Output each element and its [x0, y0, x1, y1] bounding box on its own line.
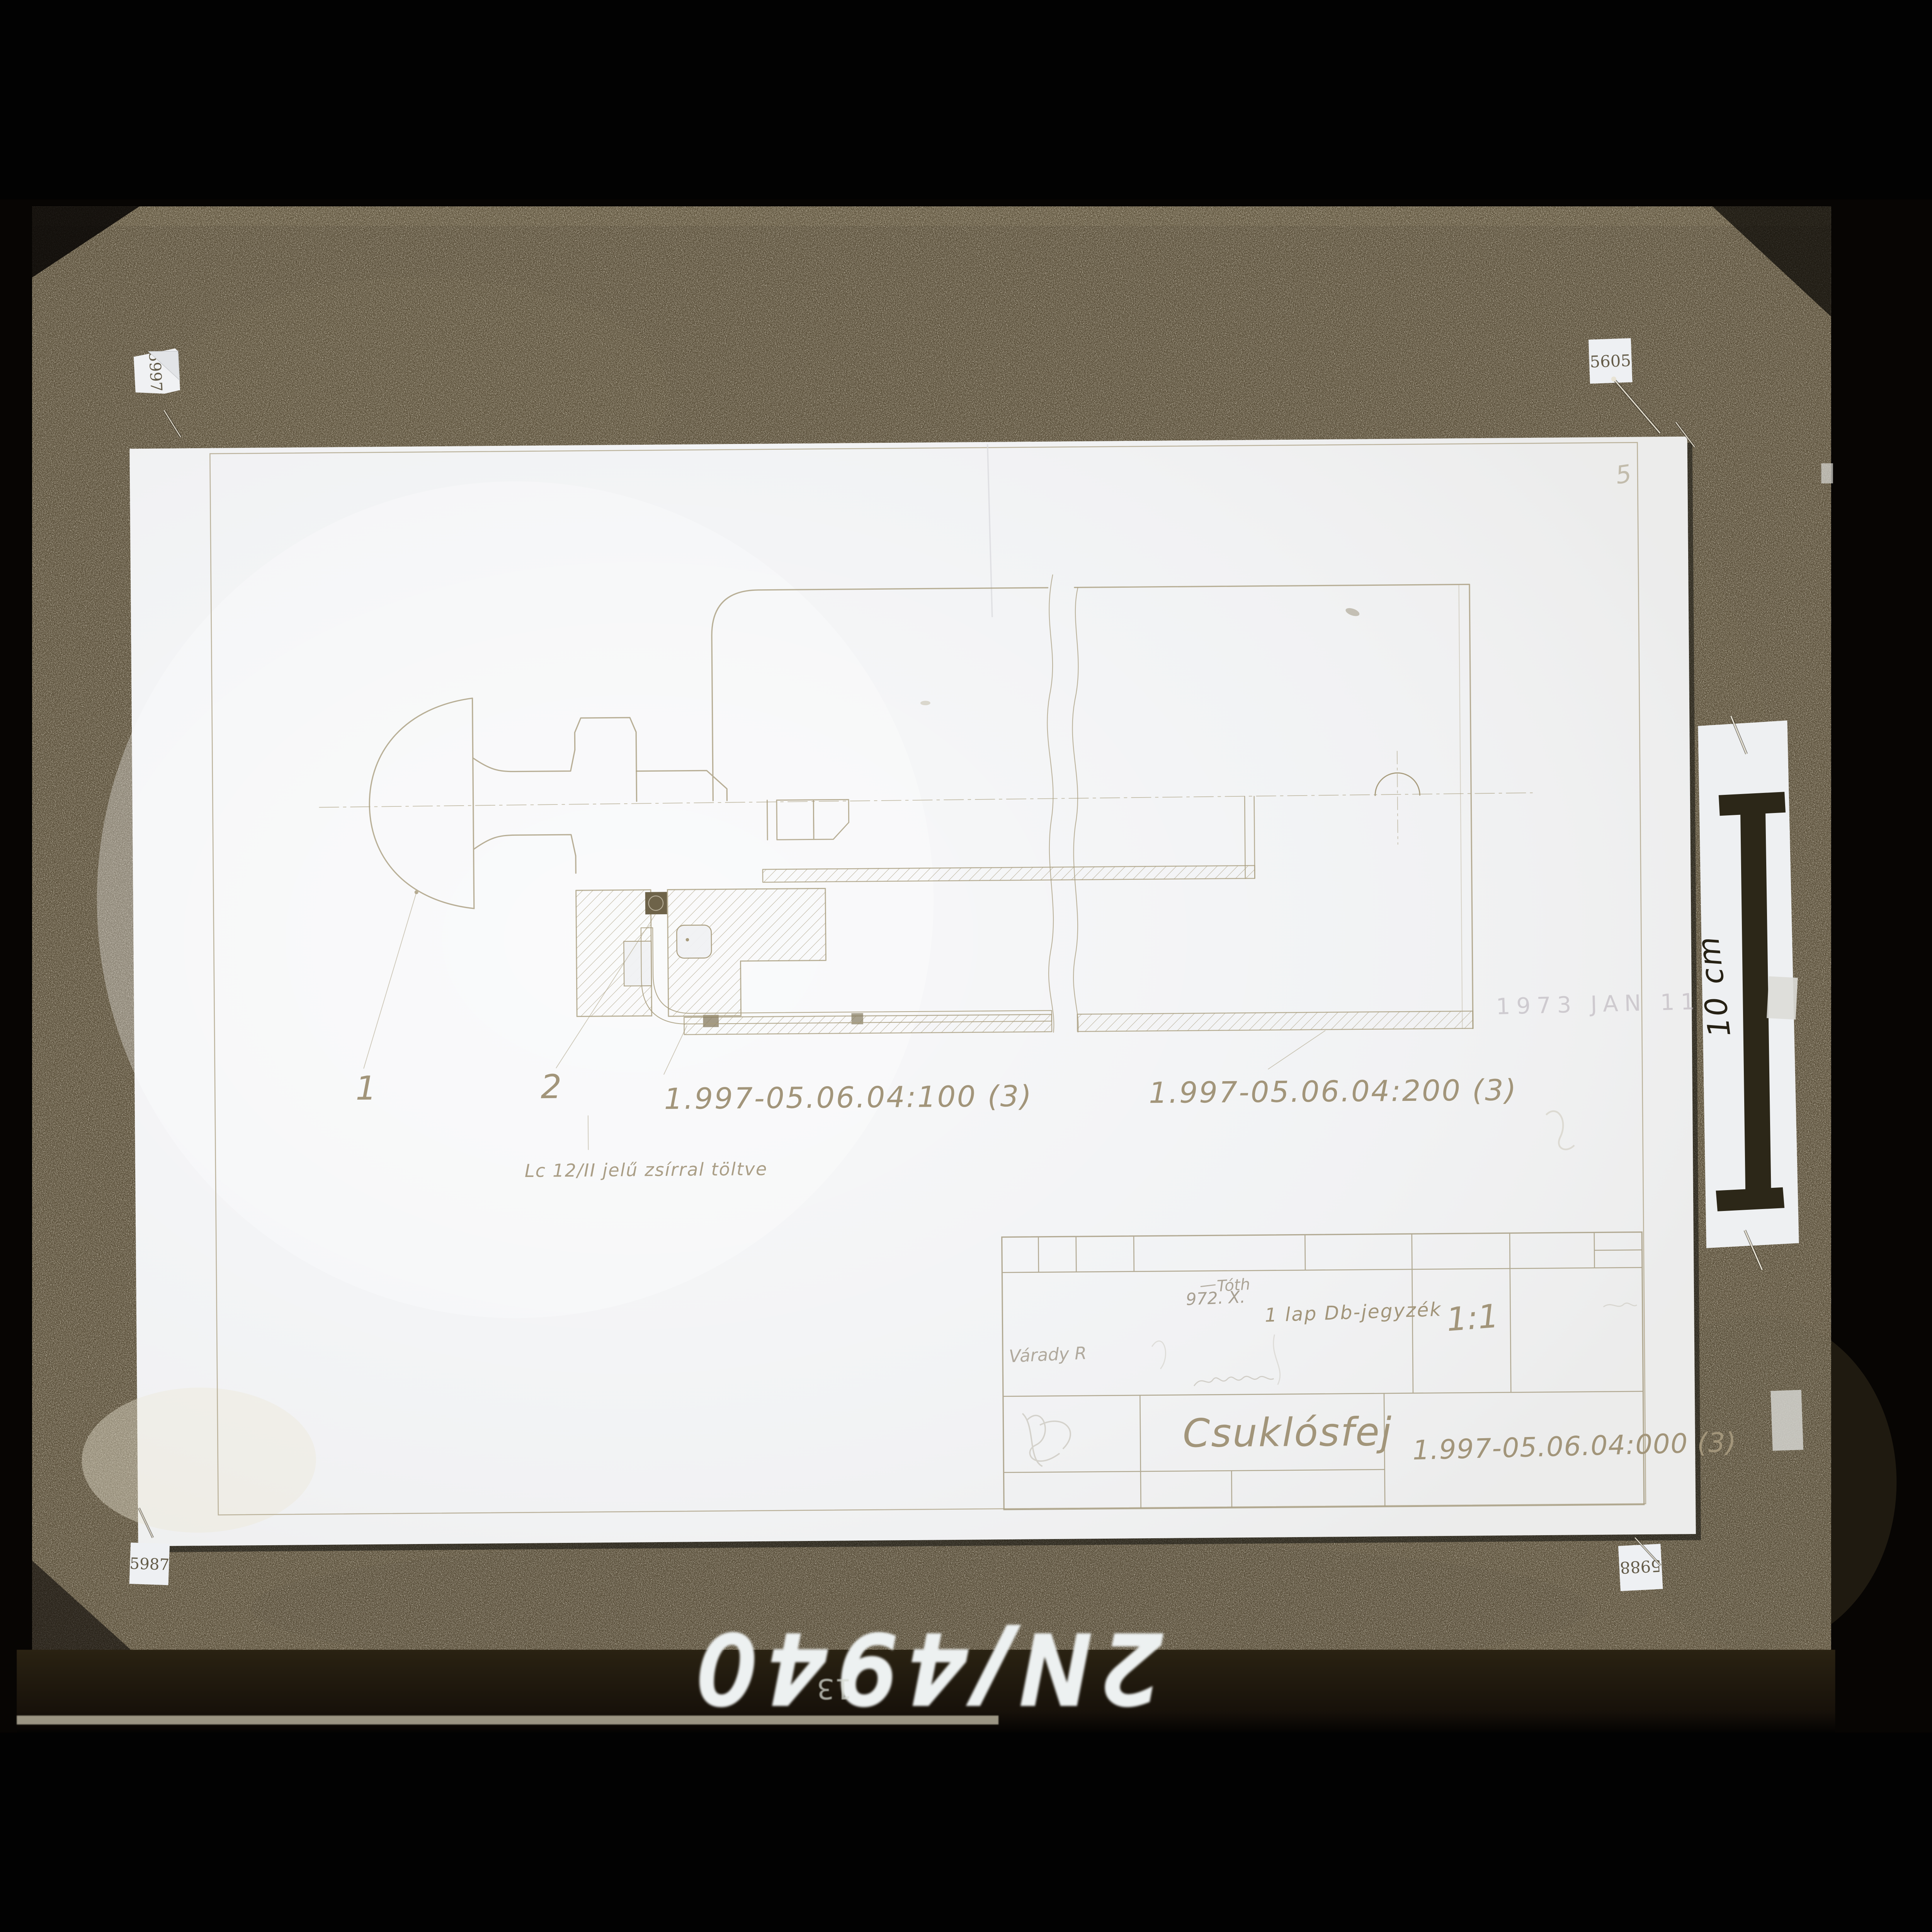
archive-tag-top-right-number: 5605 [1590, 351, 1631, 371]
bottom-inscription-number: 2N/4940 [686, 1614, 1160, 1721]
grease-note: Lc 12/II jelű zsírral töltve [525, 1158, 768, 1181]
titleblock-title: Csuklósfej [1182, 1409, 1393, 1456]
callout-part-100: 1.997-05.06.04:100 (3) [664, 1079, 1033, 1116]
archive-tag-bottom-left: 5987 [129, 1543, 170, 1585]
callout-part-200: 1.997-05.06.04:200 (3) [1149, 1073, 1518, 1110]
scale-bar-bottom [1716, 1187, 1785, 1211]
seal [645, 892, 667, 914]
titleblock-scale: 1:1 [1445, 1297, 1500, 1338]
photo-canvas: 2N/4940 13 5 [0, 0, 1932, 1932]
callout-item1: 1 [355, 1069, 377, 1107]
titleblock-signature: Várady R [1009, 1343, 1087, 1367]
archive-tag-top-right: 5605 [1588, 338, 1633, 384]
titleblock-handwritten-date: 972. X. [1185, 1287, 1246, 1310]
scale-bar-top [1719, 792, 1786, 816]
date-stamp: 1973 JAN 11 [1496, 988, 1701, 1020]
drawing-sheet: 5 [74, 436, 1738, 1553]
archive-tag-bottom-left-number: 5987 [129, 1554, 170, 1574]
archive-tag-bottom-right: 5988 [1618, 1544, 1663, 1591]
archive-photo: 2N/4940 13 5 [0, 0, 1932, 1932]
bottom-inscription-small-number: 13 [817, 1672, 852, 1704]
gland-nut [576, 890, 652, 1017]
callout-item2: 2 [541, 1068, 562, 1106]
